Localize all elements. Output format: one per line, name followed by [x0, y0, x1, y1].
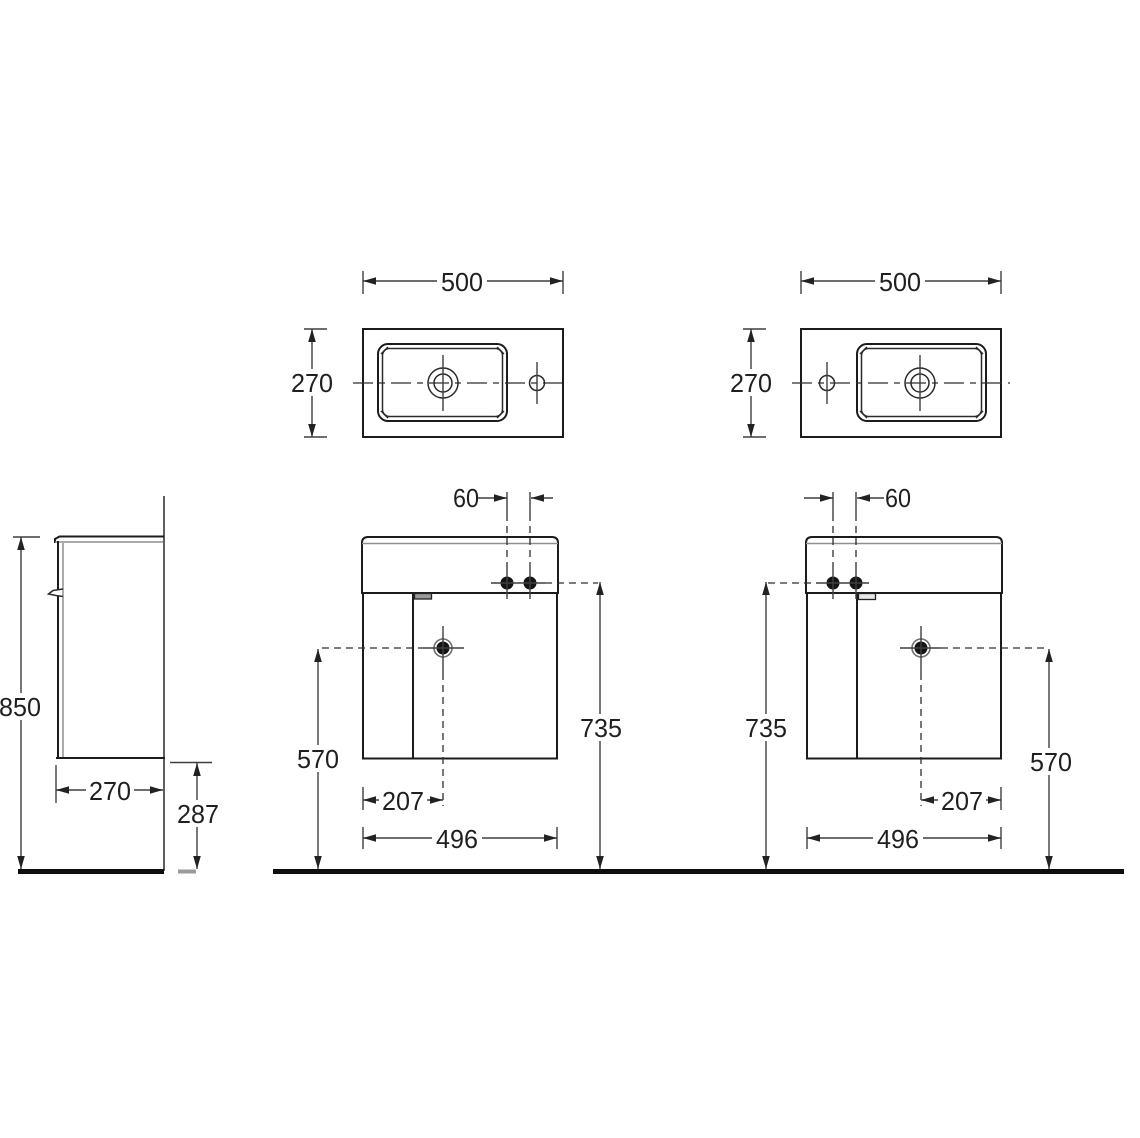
dim-label-outlet-offset-207: 207 [941, 786, 983, 816]
technical-drawing-canvas: 850 270 287 500 [0, 0, 1140, 1138]
dim-label-width-500: 500 [879, 267, 921, 297]
door-handle-profile [49, 589, 64, 597]
bowl-corner-tick [860, 347, 867, 354]
front-view-right: 60 735 570 207 496 [741, 483, 1076, 869]
dim-label-cabinet-width-496: 496 [877, 824, 919, 854]
worktop-profile [55, 537, 164, 543]
side-view: 850 270 287 [0, 496, 224, 872]
dim-label-tap-spacing-60: 60 [885, 483, 911, 513]
front-view-left: 60 735 570 207 496 [293, 483, 626, 869]
door-handle [859, 594, 876, 600]
dim-label-fixing-height-735: 735 [745, 713, 787, 743]
dim-label-depth-270: 270 [89, 776, 131, 806]
dim-label-outlet-height-570: 570 [1030, 747, 1072, 777]
dim-label-cabinet-width-496: 496 [436, 824, 478, 854]
bowl-corner-tick [497, 411, 504, 418]
door-handle [415, 594, 432, 600]
technical-drawing-page: 850 270 287 500 [0, 0, 1140, 1138]
dim-label-clearance-287: 287 [177, 799, 219, 829]
bowl-corner-tick [976, 411, 983, 418]
dim-label-tap-spacing-60: 60 [453, 483, 479, 513]
dim-label-outlet-offset-207: 207 [382, 786, 424, 816]
dim-label-width-500: 500 [441, 267, 483, 297]
dim-label-depth-270: 270 [730, 368, 772, 398]
bowl-corner-tick [860, 411, 867, 418]
dim-label-fixing-height-735: 735 [580, 713, 622, 743]
bowl-corner-tick [381, 411, 388, 418]
bowl-corner-tick [497, 347, 504, 354]
bowl-corner-tick [381, 347, 388, 354]
bowl-corner-tick [976, 347, 983, 354]
dim-label-height-850: 850 [0, 692, 41, 722]
top-view-right: 500 270 [727, 267, 1010, 437]
dim-label-depth-270: 270 [291, 368, 333, 398]
dim-label-outlet-height-570: 570 [297, 744, 339, 774]
top-view-left: 500 270 [288, 267, 563, 437]
